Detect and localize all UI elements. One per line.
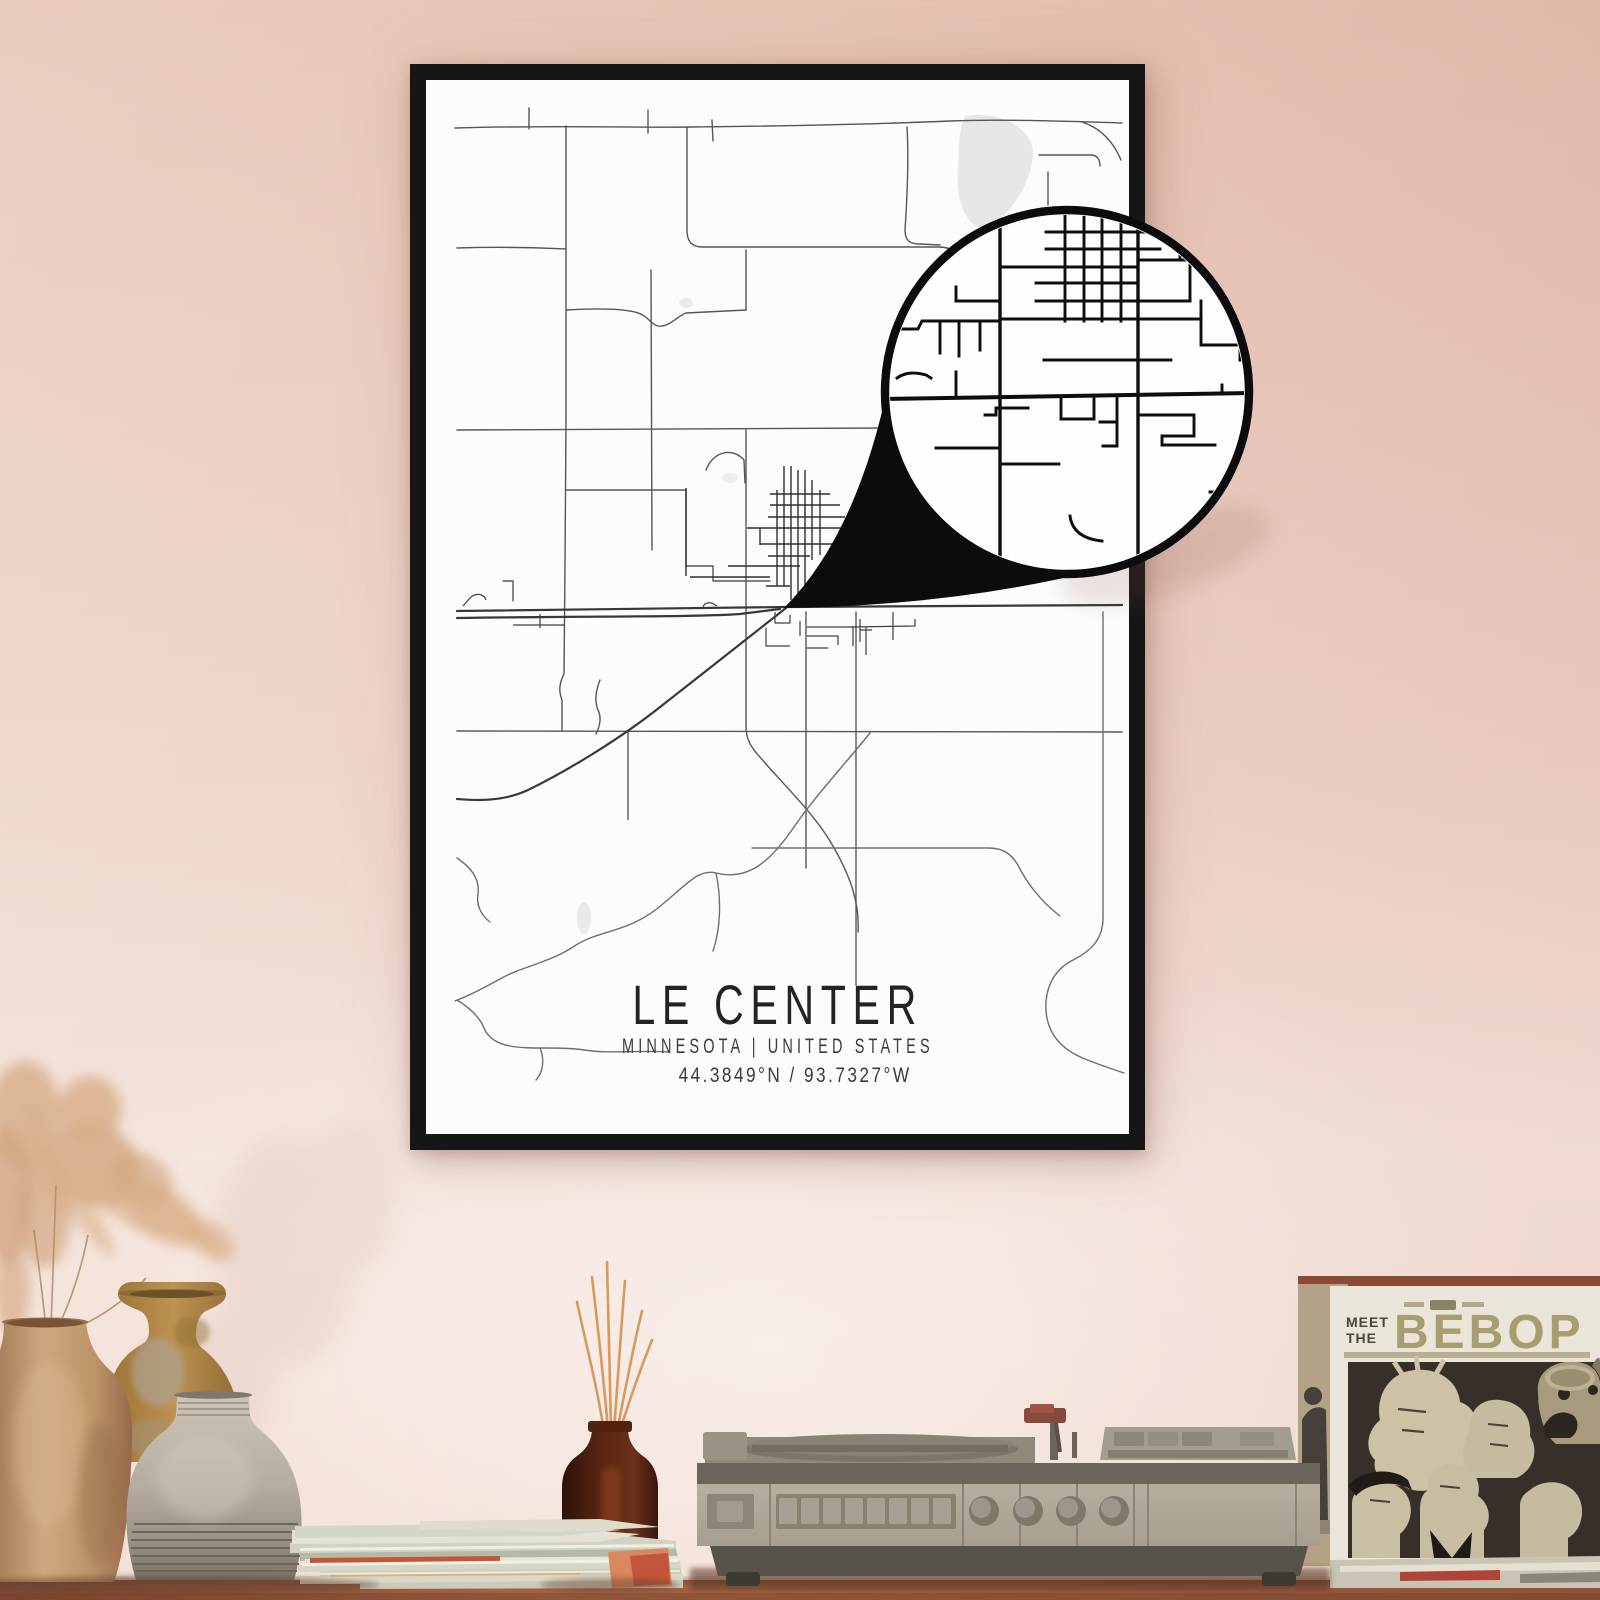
svg-text:THE: THE — [1346, 1330, 1377, 1346]
svg-text:MEET: MEET — [1346, 1314, 1389, 1330]
svg-text:BEBOP: BEBOP — [1394, 1306, 1585, 1359]
